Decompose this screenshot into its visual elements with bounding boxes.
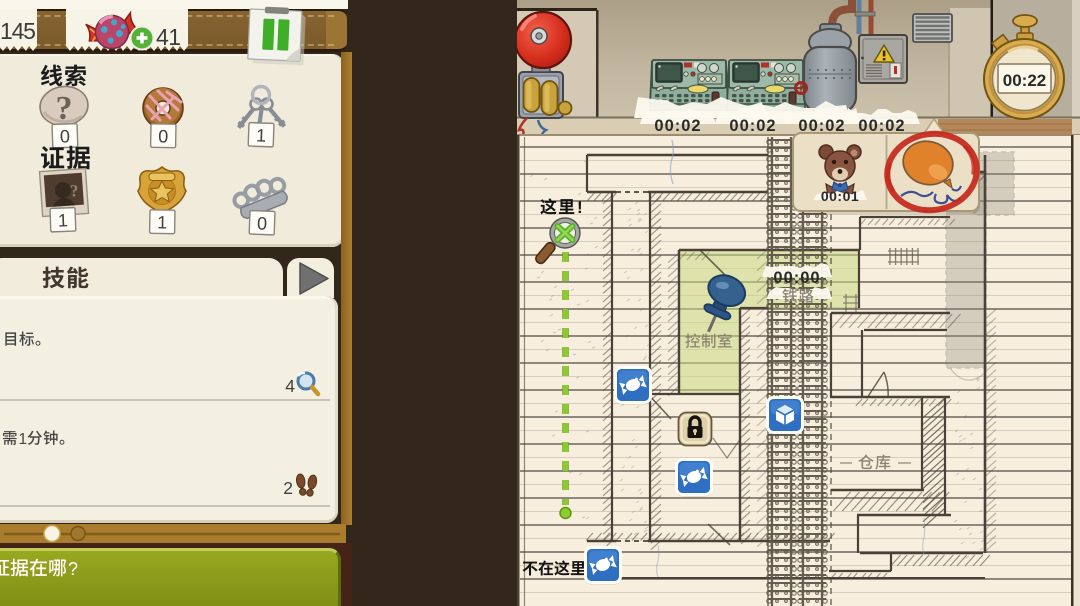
svg-text:1: 1	[19, 431, 28, 448]
svg-text:145: 145	[0, 18, 35, 44]
svg-text:0: 0	[158, 126, 168, 146]
svg-text:4: 4	[285, 376, 295, 396]
svg-text:00:00: 00:00	[773, 269, 820, 287]
svg-text:0: 0	[60, 126, 71, 146]
svg-text:1: 1	[157, 212, 167, 232]
svg-text:!: !	[577, 198, 583, 217]
svg-text:?: ?	[69, 181, 79, 201]
svg-text:?: ?	[68, 559, 78, 579]
svg-text:41: 41	[156, 24, 181, 50]
svg-text:00:22: 00:22	[1003, 71, 1046, 90]
svg-text:00:02: 00:02	[729, 117, 776, 135]
svg-text:00:02: 00:02	[654, 117, 701, 135]
svg-text:?: ?	[56, 90, 73, 127]
svg-text:1: 1	[58, 210, 69, 230]
svg-text:2: 2	[283, 478, 293, 498]
svg-text:1: 1	[256, 125, 267, 145]
svg-text:0: 0	[257, 213, 268, 233]
svg-text:00:01: 00:01	[821, 188, 859, 204]
